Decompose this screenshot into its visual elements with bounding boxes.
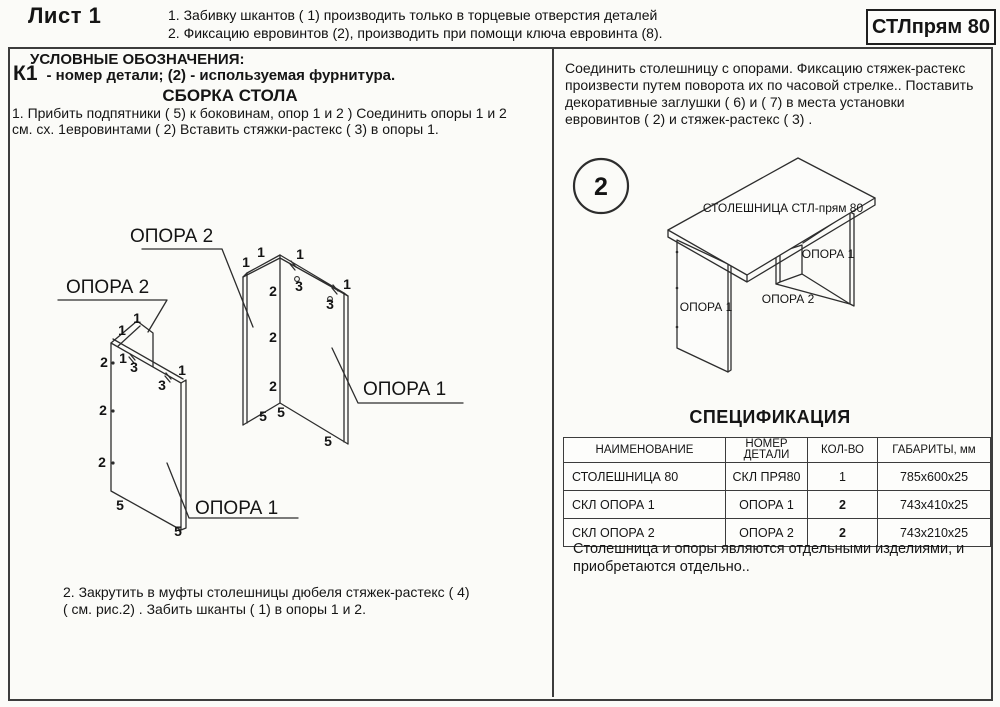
figure-number: 2 (594, 173, 608, 201)
table-row: СТОЛЕШНИЦА 80 СКЛ ПРЯ80 1 785x600x25 (564, 463, 991, 491)
diagram-number-label: 3 (326, 296, 334, 312)
callout-opora2-left (58, 300, 167, 332)
diagram-number-label: 5 (324, 433, 332, 449)
diagram-number-label: 2 (269, 283, 277, 299)
legend-description: - номер детали; (2) - используемая фурни… (47, 67, 396, 84)
diagram-part-label: ОПОРА 2 (130, 226, 213, 247)
figure-2-diagram: 2СТОЛЕШНИЦА СТЛ-прям 80ОПОРА 1ОПОРА 2ОПО… (560, 150, 990, 400)
cell-qty: 1 (808, 463, 878, 491)
cell-dimensions: 785x600x25 (878, 463, 991, 491)
cell-name: СТОЛЕШНИЦА 80 (564, 463, 726, 491)
diagram-number-label: 2 (99, 402, 107, 418)
cell-qty: 2 (808, 491, 878, 519)
diagram-number-label: 5 (116, 497, 124, 513)
step-1-text: 1. Прибить подпятники ( 5) к боковинам, … (12, 105, 507, 137)
legend-line: К1 - номер детали; (2) - используемая фу… (13, 62, 395, 86)
diagram-number-label: 5 (174, 523, 182, 539)
diagram-part-label: ОПОРА 1 (195, 498, 278, 519)
column-divider (552, 47, 554, 697)
cell-name: СКЛ ОПОРА 1 (564, 491, 726, 519)
diagram-number-label: 1 (178, 362, 186, 378)
diagram-number-label: 1 (119, 350, 127, 366)
diagram-part-label: ОПОРА 1 (363, 379, 446, 400)
col-header-qty: КОЛ-ВО (808, 438, 878, 463)
diagram-number-label: 2 (100, 354, 108, 370)
diagram-number-label: 1 (133, 310, 141, 326)
header-notes: 1. Забивку шкантов ( 1) производить толь… (168, 6, 663, 42)
cell-dimensions: 743x410x25 (878, 491, 991, 519)
leg-assembly-diagram: ОПОРА 2ОПОРА 2ОПОРА 1ОПОРА 1112221331551… (50, 212, 520, 572)
diagram-number-label: 2 (269, 329, 277, 345)
spec-table: НАИМЕНОВАНИЕ НОМЕР ДЕТАЛИ КОЛ-ВО ГАБАРИТ… (563, 437, 991, 547)
col-header-dimensions: ГАБАРИТЫ, мм (878, 438, 991, 463)
diagram-part-label: ОПОРА 1 (802, 247, 855, 261)
diagram-number-label: 1 (242, 254, 250, 270)
product-code-box: СТЛпрям 80 (866, 9, 996, 45)
diagram-part-label: ОПОРА 2 (762, 292, 815, 306)
legend-symbol: К1 (13, 62, 38, 86)
diagram-number-label: 3 (130, 359, 138, 375)
footnote-text: Столешница и опоры являются отдельными и… (573, 540, 964, 576)
assembly-section-title: СБОРКА СТОЛА (30, 86, 430, 106)
diagram-number-label: 1 (257, 244, 265, 260)
diagram-number-label: 1 (343, 276, 351, 292)
spec-header-row: НАИМЕНОВАНИЕ НОМЕР ДЕТАЛИ КОЛ-ВО ГАБАРИТ… (564, 438, 991, 463)
diagram-number-label: 5 (259, 408, 267, 424)
spec-title: СПЕЦИФИКАЦИЯ (655, 407, 885, 428)
diagram-number-label: 3 (158, 377, 166, 393)
step-2-text: 2. Закрутить в муфты столешницы дюбеля с… (63, 584, 470, 618)
sheet-title: Лист 1 (28, 3, 101, 29)
diagram-part-label: ОПОРА 2 (66, 277, 149, 298)
diagram-number-label: 2 (269, 378, 277, 394)
diagram-part-label: ОПОРА 1 (680, 300, 733, 314)
col-header-part-number: НОМЕР ДЕТАЛИ (726, 438, 808, 463)
cell-part-number: СКЛ ПРЯ80 (726, 463, 808, 491)
diagram-part-label: СТОЛЕШНИЦА СТЛ-прям 80 (703, 201, 864, 215)
product-code: СТЛпрям 80 (872, 16, 990, 39)
instruction-text: Соединить столешницу с опорами. Фиксацию… (565, 60, 973, 128)
diagram-number-label: 5 (277, 404, 285, 420)
col-header-name: НАИМЕНОВАНИЕ (564, 438, 726, 463)
diagram-number-label: 2 (98, 454, 106, 470)
diagram-number-label: 1 (118, 322, 126, 338)
table-row: СКЛ ОПОРА 1 ОПОРА 1 2 743x410x25 (564, 491, 991, 519)
cell-part-number: ОПОРА 1 (726, 491, 808, 519)
diagram-number-label: 1 (296, 246, 304, 262)
diagram-number-label: 3 (295, 278, 303, 294)
